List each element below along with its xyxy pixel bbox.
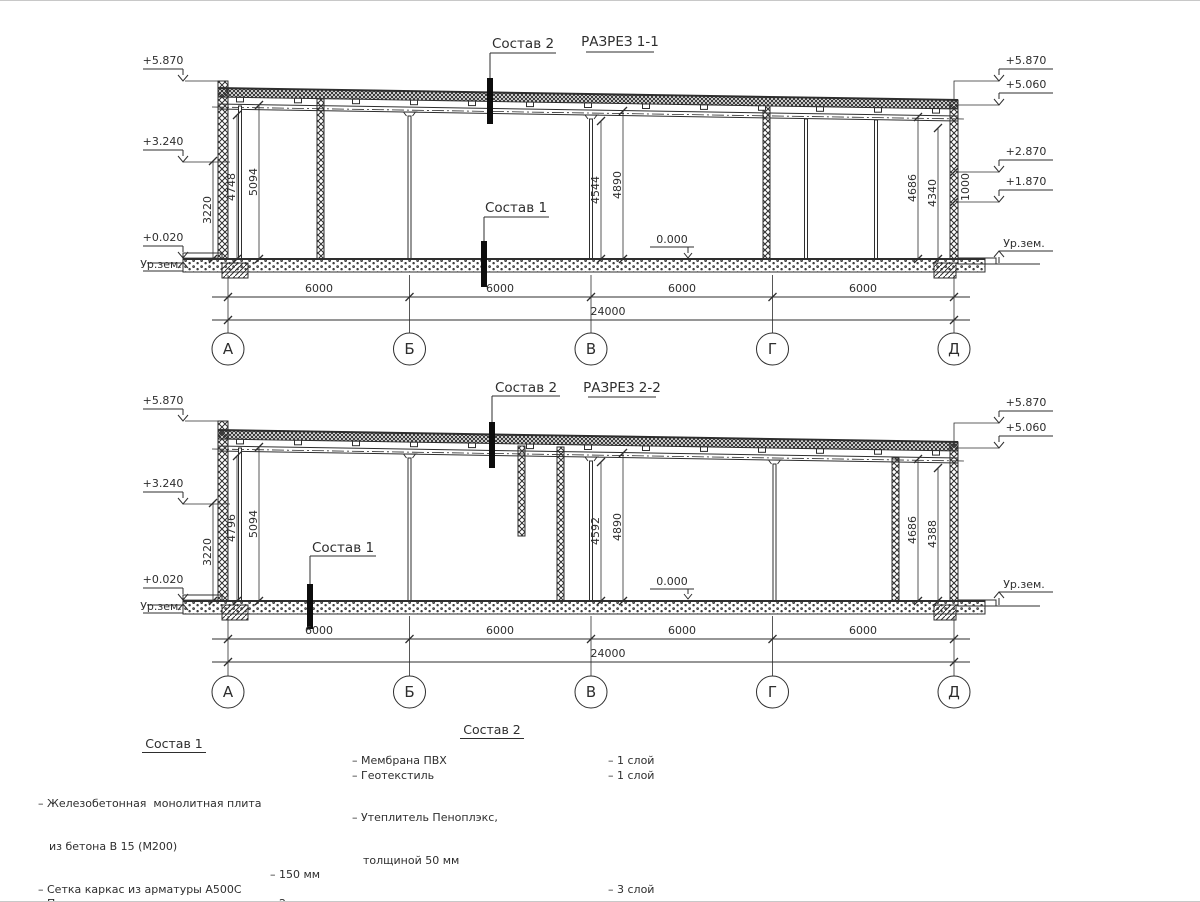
section-1-1: РАЗРЕЗ 1-1 Состав 2 Состав 1 0.000 +5.87… [140, 34, 1053, 365]
axis-letter: Д [948, 683, 960, 701]
elevation-label: +1.870 [1006, 175, 1047, 188]
dim-label: 5094 [247, 510, 260, 538]
legend-value: – 2 слоя [270, 897, 316, 902]
zero-label: 0.000 [656, 233, 688, 246]
ground-level-label: Ур.зем. [1003, 578, 1045, 591]
span-dim: 6000 [849, 282, 877, 295]
legend-value: – 1 слой [608, 754, 654, 768]
span-dim: 6000 [668, 624, 696, 637]
legend-line: из бетона В 15 (М200) [38, 840, 270, 854]
section-title: РАЗРЕЗ 2-2 [583, 380, 661, 396]
dim-label: 4890 [611, 171, 624, 199]
elevation-label: +5.870 [1006, 396, 1047, 409]
legend-item: – Геотекстиль – 1 слой [352, 769, 682, 783]
section-title: РАЗРЕЗ 1-1 [581, 34, 659, 50]
dim-label: 4592 [589, 517, 602, 545]
dim-label: 1000 [959, 173, 972, 201]
columns [239, 448, 783, 601]
elevation-label: +0.020 [143, 231, 184, 244]
span-dim: 6000 [305, 282, 333, 295]
columns [239, 106, 878, 259]
sostav2-leader: Состав 2 [487, 36, 556, 124]
elevation-label: +0.020 [143, 573, 184, 586]
zero-mark: 0.000 [650, 233, 694, 258]
span-dim: 6000 [668, 282, 696, 295]
dim-label: 3220 [201, 196, 214, 224]
dim-label: 4748 [225, 173, 238, 201]
dim-label: 4544 [589, 176, 602, 204]
legend-value: – 150 мм [270, 868, 320, 882]
legend-item: – Железобетонная монолитная плита из бет… [38, 768, 338, 882]
elevation-label: +5.870 [1006, 54, 1047, 67]
horizontal-dimensions: 6000 6000 6000 6000 24000 [212, 616, 970, 676]
dim-label: 3220 [201, 538, 214, 566]
zero-label: 0.000 [656, 575, 688, 588]
elevation-label: +3.240 [143, 477, 184, 490]
dim-label: 4340 [926, 179, 939, 207]
dim-label: 4890 [611, 513, 624, 541]
axis-letter: Г [768, 340, 777, 358]
ground-level-label: Ур.зем. [140, 600, 182, 613]
span-dim: 6000 [486, 624, 514, 637]
sostav2-label: Состав 2 [492, 36, 554, 52]
legend-line: толщиной 50 мм [352, 854, 608, 868]
dim-label: 5094 [247, 168, 260, 196]
vertical-dimensions: 3220 4796 5094 4592 4890 4686 4388 [201, 443, 942, 605]
dim-label: 4388 [926, 520, 939, 548]
legend-sostav-2: Состав 2 – Мембрана ПВХ – 1 слой – Геоте… [352, 723, 682, 902]
legend-item: – Сетка каркас из арматуры А500С [38, 883, 338, 897]
zero-mark: 0.000 [650, 575, 694, 599]
legend-line: – Пленка полиэтиленовая [38, 897, 270, 902]
section-2-2: РАЗРЕЗ 2-2 Состав 2 Состав 1 0.000 +5.87… [140, 380, 1053, 708]
elevation-label: +5.870 [143, 54, 184, 67]
legend2-title: Состав 2 [352, 723, 632, 739]
span-dim: 6000 [849, 624, 877, 637]
drawing-canvas: РАЗРЕЗ 1-1 Состав 2 Состав 1 0.000 +5.87… [0, 1, 1200, 729]
axis-letter: Г [768, 683, 777, 701]
elevation-marks-left: +5.870 +3.240 +0.020 Ур.зем. [140, 54, 188, 271]
elevation-label: +2.870 [1006, 145, 1047, 158]
span-dim: 6000 [305, 624, 333, 637]
sostav1-label: Состав 1 [485, 200, 547, 216]
total-dim: 24000 [591, 647, 626, 660]
dim-label: 4796 [225, 514, 238, 542]
axis-letter: В [586, 683, 596, 701]
elevation-marks-right: +5.870 +5.060 Ур.зем. [994, 396, 1053, 605]
legend-item: – Пленка полиэтиленовая – 2 слоя [38, 897, 338, 902]
axis-bubbles: А Б В Г Д [212, 676, 970, 708]
elevation-label: +5.870 [143, 394, 184, 407]
legend1-title: Состав 1 [38, 737, 310, 753]
ground-level-label: Ур.зем. [1003, 237, 1045, 250]
legend-value: – 3 слой [608, 883, 654, 897]
legend-line: – Геотекстиль [352, 769, 608, 783]
sostav1-leader: Состав 1 [307, 540, 376, 629]
sostav2-label: Состав 2 [495, 380, 557, 396]
sostav1-leader: Состав 1 [481, 200, 549, 287]
span-dim: 6000 [486, 282, 514, 295]
legend-item: – Утеплитель Пеноплэкс, толщиной 50 мм –… [352, 783, 682, 897]
elevation-marks-left: +5.870 +3.240 +0.020 Ур.зем. [140, 394, 188, 613]
elevation-label: +5.060 [1006, 421, 1047, 434]
elevation-marks-right: +5.870 +5.060 +2.870 +1.870 Ур.зем. [994, 54, 1053, 263]
axis-letter: Д [948, 340, 960, 358]
legend-line: – Мембрана ПВХ [352, 754, 608, 768]
legend-line: – Сетка каркас из арматуры А500С [38, 883, 270, 897]
legend-item: – Мембрана ПВХ – 1 слой [352, 754, 682, 768]
axis-letter: А [223, 340, 234, 358]
drawing-sheet: РАЗРЕЗ 1-1 Состав 2 Состав 1 0.000 +5.87… [0, 0, 1200, 902]
dim-label: 4686 [906, 516, 919, 544]
horizontal-dimensions: 6000 6000 6000 6000 24000 [212, 275, 970, 333]
axis-bubbles: А Б В Г Д [212, 333, 970, 365]
legend-line: – Железобетонная монолитная плита [38, 797, 270, 811]
dim-label: 4686 [906, 174, 919, 202]
legend-sostav-1: Состав 1 – Железобетонная монолитная пли… [38, 737, 338, 902]
elevation-label: +5.060 [1006, 78, 1047, 91]
axis-letter: В [586, 340, 596, 358]
legend-line: – Утеплитель Пеноплэкс, [352, 811, 608, 825]
elevation-label: +3.240 [143, 135, 184, 148]
sostav1-label: Состав 1 [312, 540, 374, 556]
axis-letter: Б [404, 340, 414, 358]
axis-letter: А [223, 683, 234, 701]
total-dim: 24000 [591, 305, 626, 318]
legend-value: – 1 слой [608, 769, 654, 783]
axis-letter: Б [404, 683, 414, 701]
ground-level-label: Ур.зем. [140, 258, 182, 271]
